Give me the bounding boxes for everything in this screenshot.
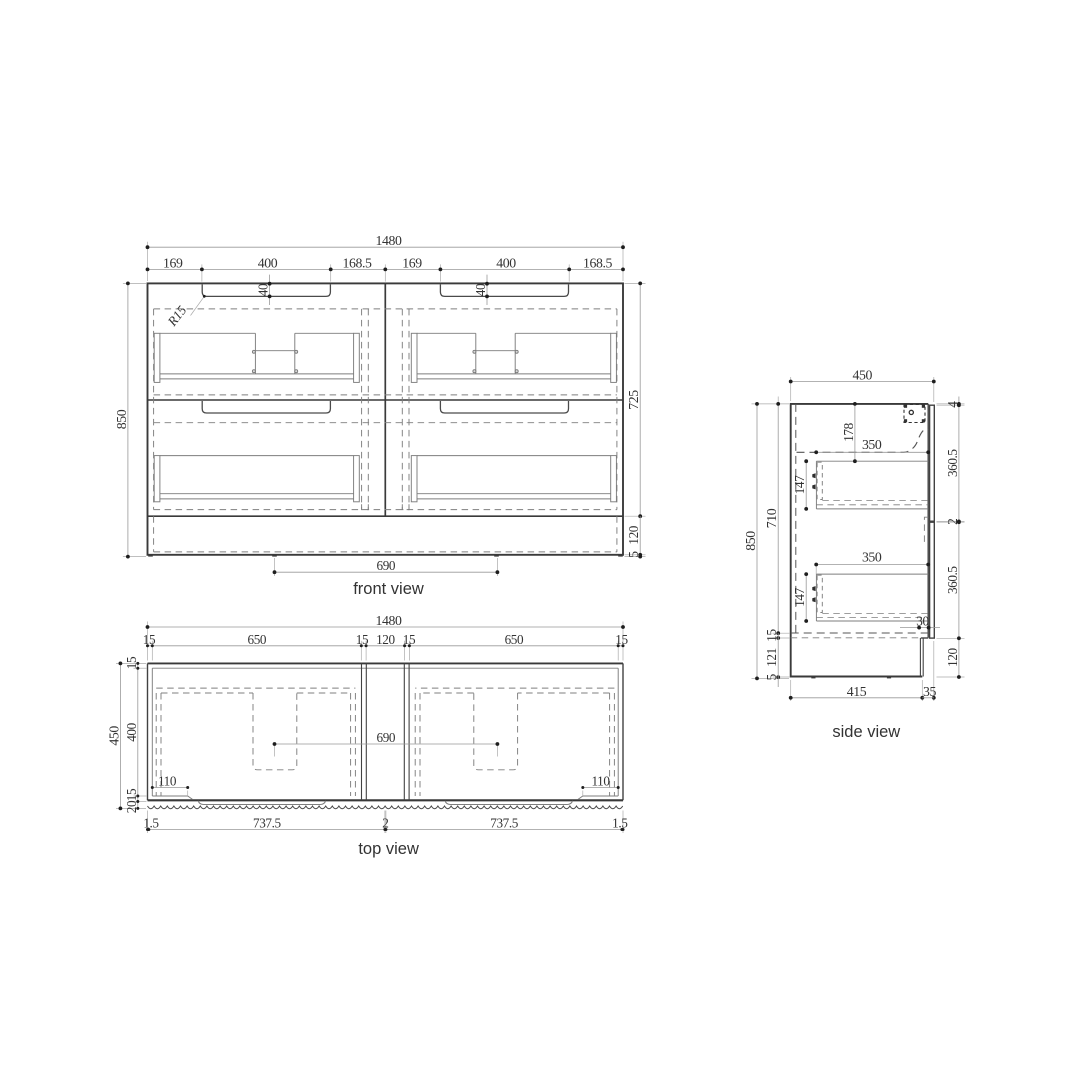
- svg-text:15: 15: [356, 632, 369, 647]
- svg-text:737.5: 737.5: [490, 816, 518, 831]
- svg-text:110: 110: [158, 774, 177, 789]
- svg-text:120: 120: [626, 525, 641, 544]
- svg-text:121: 121: [764, 648, 779, 667]
- svg-text:5: 5: [764, 673, 779, 680]
- svg-text:169: 169: [163, 255, 183, 270]
- svg-text:400: 400: [258, 255, 278, 270]
- svg-text:15: 15: [403, 632, 416, 647]
- svg-text:1.5: 1.5: [612, 816, 628, 831]
- svg-text:690: 690: [377, 730, 396, 745]
- svg-text:top view: top view: [358, 840, 419, 858]
- svg-text:737.5: 737.5: [253, 816, 281, 831]
- svg-text:1480: 1480: [376, 613, 402, 628]
- svg-text:40: 40: [256, 283, 271, 296]
- svg-text:110: 110: [591, 774, 610, 789]
- svg-text:120: 120: [945, 648, 960, 667]
- svg-text:30: 30: [916, 613, 929, 628]
- svg-text:850: 850: [743, 531, 758, 551]
- svg-text:450: 450: [853, 367, 873, 382]
- svg-text:15: 15: [764, 629, 779, 642]
- svg-text:350: 350: [862, 550, 882, 565]
- svg-text:1480: 1480: [376, 233, 402, 248]
- svg-text:15: 15: [124, 788, 139, 801]
- svg-text:120: 120: [376, 632, 395, 647]
- svg-text:360.5: 360.5: [945, 449, 960, 477]
- svg-text:400: 400: [124, 722, 139, 741]
- svg-text:2: 2: [945, 519, 960, 525]
- svg-text:147: 147: [792, 587, 807, 606]
- svg-text:R15: R15: [164, 302, 190, 329]
- svg-text:690: 690: [377, 558, 396, 573]
- svg-text:20: 20: [124, 800, 139, 813]
- svg-text:169: 169: [402, 255, 422, 270]
- svg-text:15: 15: [615, 632, 628, 647]
- svg-text:40: 40: [473, 283, 488, 296]
- svg-text:650: 650: [248, 632, 267, 647]
- svg-text:35: 35: [923, 684, 936, 699]
- svg-text:450: 450: [106, 726, 121, 746]
- svg-text:2: 2: [382, 816, 388, 831]
- svg-text:168.5: 168.5: [342, 255, 372, 270]
- svg-text:725: 725: [626, 390, 641, 410]
- svg-text:710: 710: [764, 508, 779, 528]
- svg-text:front view: front view: [353, 580, 424, 598]
- svg-text:side view: side view: [832, 723, 900, 741]
- svg-text:5: 5: [626, 551, 641, 558]
- svg-text:415: 415: [847, 684, 867, 699]
- svg-text:147: 147: [792, 475, 807, 494]
- svg-text:1.5: 1.5: [143, 816, 159, 831]
- svg-text:350: 350: [862, 437, 882, 452]
- svg-text:400: 400: [496, 255, 516, 270]
- svg-text:15: 15: [143, 632, 156, 647]
- svg-text:850: 850: [114, 409, 129, 429]
- svg-text:360.5: 360.5: [945, 566, 960, 594]
- svg-text:168.5: 168.5: [583, 255, 613, 270]
- svg-text:4: 4: [945, 401, 960, 408]
- svg-text:15: 15: [124, 656, 139, 669]
- svg-text:178: 178: [841, 422, 856, 441]
- svg-text:650: 650: [505, 632, 524, 647]
